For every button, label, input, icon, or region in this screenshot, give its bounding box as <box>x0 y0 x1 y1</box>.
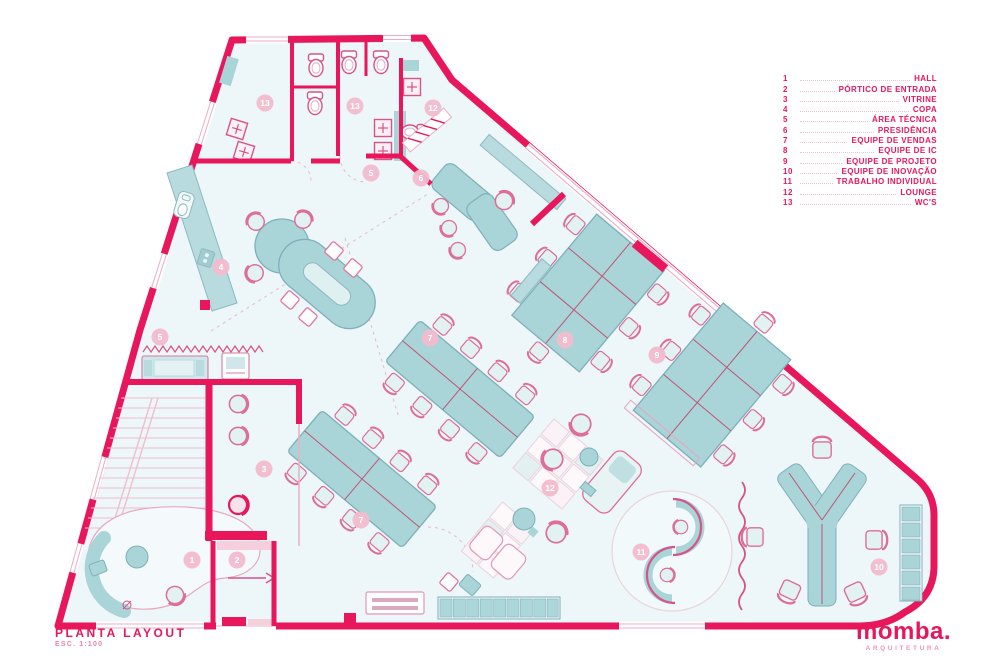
legend-item-label: PÓRTICO DE ENTRADA <box>839 85 937 94</box>
room-badge: 6 <box>413 170 430 187</box>
room-badge: 7 <box>353 512 370 529</box>
legend-item: 5 ÁREA TÉCNICA <box>783 114 937 124</box>
vitrine-base-wall <box>205 531 267 540</box>
legend-item-label: EQUIPE DE IC <box>878 146 937 155</box>
legend: 1 HALL 2 PÓRTICO DE ENTRADA 3 VITRINE 4 … <box>783 73 937 207</box>
toilet-icon <box>374 51 389 74</box>
legend-item: 9 EQUIPE DE PROJETO <box>783 155 937 165</box>
svg-text:12: 12 <box>428 103 438 113</box>
logo: momba. ARQUITETURA <box>856 620 951 652</box>
legend-leader-line <box>800 162 842 164</box>
svg-text:9: 9 <box>655 350 660 360</box>
room-badge: 3 <box>256 461 273 478</box>
window-band <box>383 33 411 42</box>
svg-text:4: 4 <box>219 262 224 272</box>
room-badge: 12 <box>542 480 559 497</box>
chair-icon <box>673 520 688 534</box>
legend-item-number: 8 <box>783 146 798 155</box>
display-chair-highlight-icon <box>229 495 248 514</box>
room-badge: 12 <box>425 100 442 117</box>
legend-leader-line <box>800 182 833 184</box>
room-badge: 13 <box>347 98 364 115</box>
legend-item-number: 9 <box>783 157 798 166</box>
svg-text:5: 5 <box>158 332 163 342</box>
svg-text:10: 10 <box>874 562 884 572</box>
logo-name: momba. <box>856 620 951 644</box>
svg-text:7: 7 <box>359 515 364 525</box>
legend-leader-line <box>800 131 874 133</box>
legend-item: 12 LOUNGE <box>783 186 937 196</box>
room-badge: 11 <box>633 544 650 561</box>
legend-item-label: WC'S <box>915 198 937 207</box>
legend-item: 3 VITRINE <box>783 94 937 104</box>
svg-text:11: 11 <box>637 547 646 557</box>
legend-leader-line <box>800 120 868 122</box>
svg-text:13: 13 <box>260 98 270 108</box>
legend-leader-line <box>800 203 911 205</box>
svg-text:1: 1 <box>190 555 195 565</box>
room-badge: 5 <box>363 165 380 182</box>
svg-text:13: 13 <box>350 101 360 111</box>
bench <box>366 592 424 614</box>
window-band <box>619 622 705 631</box>
sink-icon <box>375 120 392 137</box>
service-door <box>344 613 356 626</box>
display-chair-icon <box>229 395 248 413</box>
legend-item: 2 PÓRTICO DE ENTRADA <box>783 83 937 93</box>
toilet-icon <box>342 51 357 74</box>
legend-item-number: 3 <box>783 95 798 104</box>
shelf <box>403 60 419 71</box>
title-block: PLANTA LAYOUT ESC. 1:100 <box>55 626 186 648</box>
svg-text:7: 7 <box>428 333 433 343</box>
legend-item-label: EQUIPE DE PROJETO <box>846 157 937 166</box>
room-badge: 4 <box>213 259 230 276</box>
legend-leader-line <box>800 193 896 195</box>
room-badge: 5 <box>152 329 169 346</box>
toilet-icon <box>308 92 323 115</box>
legend-item-number: 10 <box>783 167 798 176</box>
legend-item-label: PRESIDÊNCIA <box>878 126 937 135</box>
legend-item: 6 PRESIDÊNCIA <box>783 124 937 134</box>
legend-item-number: 13 <box>783 198 798 207</box>
boiler-equipment <box>222 353 249 379</box>
svg-text:3: 3 <box>262 464 267 474</box>
svg-text:6: 6 <box>419 173 424 183</box>
entrance-door-leaf <box>222 617 246 626</box>
individual-work-area <box>612 491 732 611</box>
sink-icon <box>404 79 421 96</box>
legend-item-label: ÁREA TÉCNICA <box>872 115 937 124</box>
display-chair-icon <box>229 427 248 445</box>
legend-leader-line <box>800 110 909 112</box>
legend-leader-line <box>800 141 847 143</box>
lockers <box>438 597 560 619</box>
chair-icon <box>660 568 675 582</box>
room-badge: 7 <box>422 330 439 347</box>
legend-item-label: COPA <box>913 105 937 114</box>
toilet-icon <box>309 54 324 77</box>
legend-item: 11 TRABALHO INDIVIDUAL <box>783 176 937 186</box>
legend-item-label: TRABALHO INDIVIDUAL <box>837 177 937 186</box>
svg-text:2: 2 <box>235 555 240 565</box>
legend-item-label: LOUNGE <box>900 188 937 197</box>
legend-leader-line <box>800 90 835 92</box>
svg-text:12: 12 <box>545 483 555 493</box>
svg-text:5: 5 <box>369 168 374 178</box>
entrance-threshold <box>248 619 274 625</box>
legend-item: 10 EQUIPE DE INOVAÇÃO <box>783 166 937 176</box>
legend-item-label: VITRINE <box>903 95 937 104</box>
column <box>200 300 210 310</box>
room-badge: 8 <box>557 332 574 349</box>
legend-item-label: HALL <box>914 74 937 83</box>
legend-item-number: 12 <box>783 188 798 197</box>
legend-item: 13 WC'S <box>783 197 937 207</box>
svg-text:8: 8 <box>563 335 568 345</box>
legend-leader-line <box>800 151 874 153</box>
room-badge: 10 <box>871 559 888 576</box>
legend-item-number: 1 <box>783 74 798 83</box>
ac-equipment <box>142 356 208 380</box>
window-band <box>246 35 288 44</box>
legend-item-number: 7 <box>783 136 798 145</box>
room-badge: 2 <box>229 552 246 569</box>
wall-shelf <box>900 505 922 601</box>
legend-item-number: 11 <box>783 177 798 186</box>
room-badge: 13 <box>257 95 274 112</box>
legend-item-number: 5 <box>783 115 798 124</box>
legend-item-label: EQUIPE DE VENDAS <box>851 136 937 145</box>
legend-item: 1 HALL <box>783 73 937 83</box>
room-badge: 9 <box>649 347 666 364</box>
plan-title: PLANTA LAYOUT <box>55 626 186 640</box>
side-table <box>580 448 598 466</box>
plan-scale: ESC. 1:100 <box>55 641 186 648</box>
legend-leader-line <box>800 100 899 102</box>
floor-plan-sheet: { "legend": { "items": [ {"num":"1","lab… <box>0 0 1000 667</box>
legend-leader-line <box>800 172 837 174</box>
legend-item-number: 2 <box>783 85 798 94</box>
legend-item-number: 4 <box>783 105 798 114</box>
legend-item: 7 EQUIPE DE VENDAS <box>783 135 937 145</box>
legend-item-label: EQUIPE DE INOVAÇÃO <box>841 167 937 176</box>
legend-item: 4 COPA <box>783 104 937 114</box>
pouf <box>513 508 535 530</box>
legend-item: 8 EQUIPE DE IC <box>783 145 937 155</box>
pouf <box>126 546 148 568</box>
legend-leader-line <box>800 79 910 81</box>
legend-item-number: 6 <box>783 126 798 135</box>
room-badge: 1 <box>184 552 201 569</box>
logo-tagline: ARQUITETURA <box>856 645 951 652</box>
